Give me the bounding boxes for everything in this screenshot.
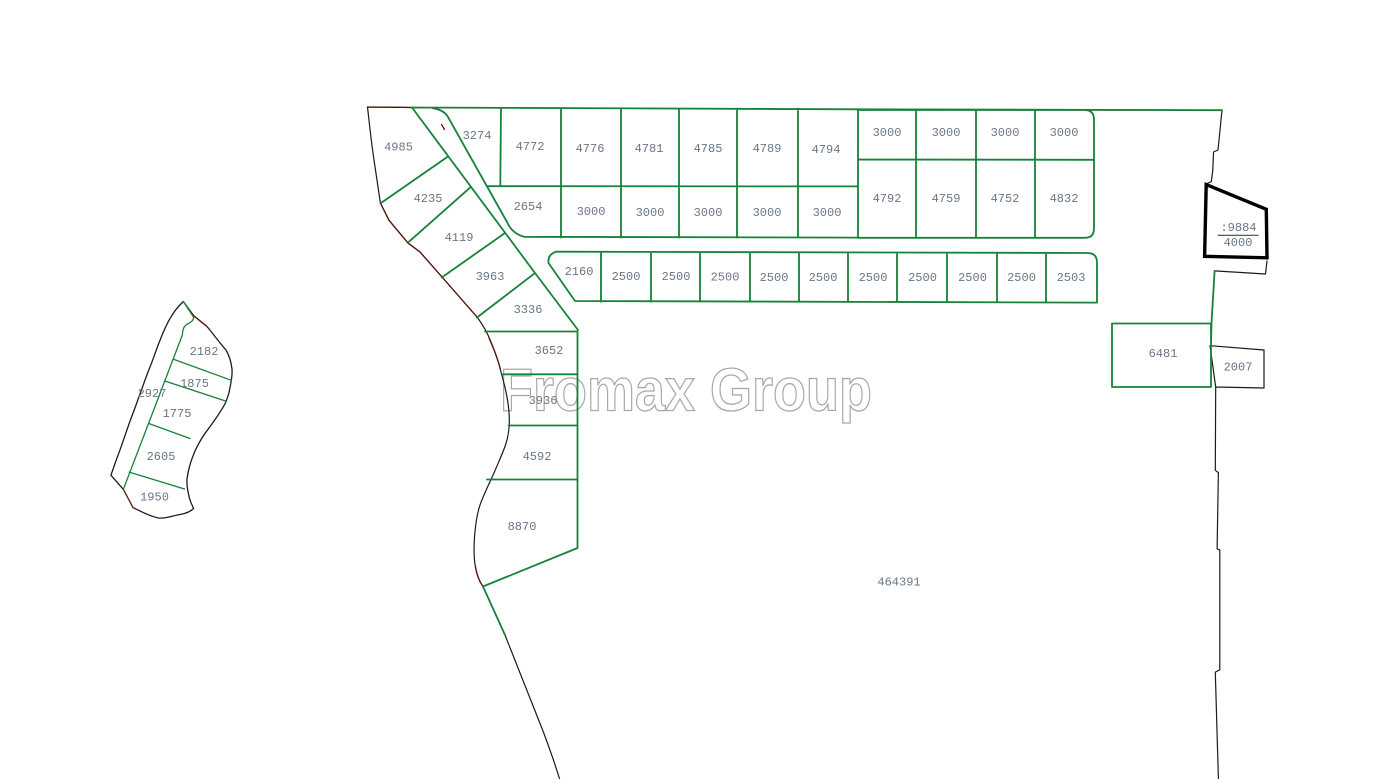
svg-text:4781: 4781: [635, 142, 664, 156]
svg-text:4592: 4592: [523, 450, 552, 464]
svg-text:3336: 3336: [514, 303, 543, 317]
svg-text:6481: 6481: [1149, 347, 1178, 361]
svg-text:1775: 1775: [163, 407, 192, 421]
svg-text:4235: 4235: [414, 192, 443, 206]
svg-text:4772: 4772: [516, 140, 545, 154]
svg-text:4785: 4785: [694, 142, 723, 156]
svg-text:464391: 464391: [877, 576, 920, 590]
svg-text:3963: 3963: [476, 270, 505, 284]
svg-text:2654: 2654: [514, 200, 543, 214]
svg-text:3000: 3000: [813, 206, 842, 220]
svg-text:4752: 4752: [991, 192, 1020, 206]
svg-text:3000: 3000: [873, 126, 902, 140]
svg-text:2500: 2500: [958, 271, 987, 285]
svg-text:2605: 2605: [147, 450, 176, 464]
svg-text:2500: 2500: [612, 270, 641, 284]
svg-text:4119: 4119: [445, 231, 474, 245]
svg-text:2500: 2500: [809, 271, 838, 285]
svg-text:3000: 3000: [636, 206, 665, 220]
svg-text:8870: 8870: [508, 520, 537, 534]
svg-text:2503: 2503: [1057, 271, 1086, 285]
svg-text::9884: :9884: [1220, 221, 1256, 235]
svg-text:3000: 3000: [1050, 126, 1079, 140]
svg-text:4985: 4985: [384, 141, 413, 155]
svg-text:4000: 4000: [1224, 236, 1253, 250]
svg-text:2182: 2182: [190, 345, 219, 359]
svg-text:4776: 4776: [576, 142, 605, 156]
svg-text:2927: 2927: [138, 387, 167, 401]
svg-text:2500: 2500: [1007, 271, 1036, 285]
svg-text:4832: 4832: [1050, 192, 1079, 206]
svg-text:4794: 4794: [812, 143, 841, 157]
svg-text:2500: 2500: [711, 271, 740, 285]
svg-text:2500: 2500: [859, 271, 888, 285]
svg-text:4759: 4759: [932, 192, 961, 206]
svg-text:3000: 3000: [753, 206, 782, 220]
svg-text:3000: 3000: [694, 206, 723, 220]
svg-text:3652: 3652: [535, 344, 564, 358]
svg-text:4792: 4792: [873, 192, 902, 206]
svg-text:2160: 2160: [565, 265, 594, 279]
svg-text:1950: 1950: [140, 491, 169, 505]
svg-text:2500: 2500: [662, 270, 691, 284]
svg-text:Fromax Group: Fromax Group: [500, 357, 872, 424]
svg-text:3274: 3274: [463, 129, 492, 143]
svg-text:2007: 2007: [1224, 361, 1253, 375]
svg-text:3000: 3000: [991, 126, 1020, 140]
svg-text:3000: 3000: [932, 126, 961, 140]
svg-text:3000: 3000: [577, 205, 606, 219]
svg-text:1875: 1875: [180, 377, 209, 391]
svg-text:4789: 4789: [753, 142, 782, 156]
svg-text:2500: 2500: [908, 271, 937, 285]
svg-text:2500: 2500: [760, 271, 789, 285]
svg-text:3936: 3936: [529, 394, 558, 408]
